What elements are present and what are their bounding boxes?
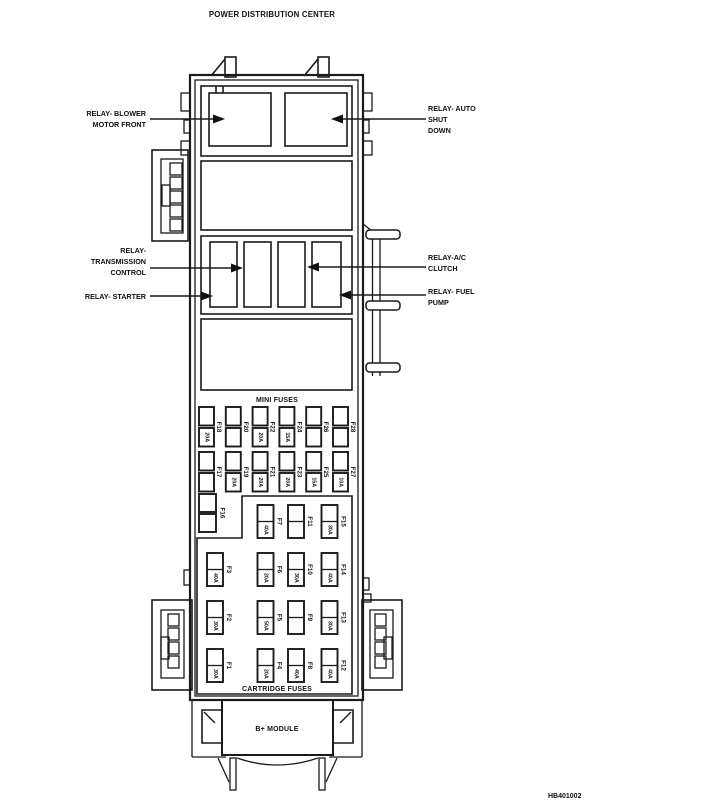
- mini-fuse-grid: 20AF18F2020AF2215AF24F26F28F1720AF1920AF…: [199, 407, 356, 492]
- auto-shutdown-label-line2: SHUT: [428, 115, 448, 124]
- cartridge-fuse-f11: F11: [288, 505, 313, 538]
- svg-text:20A: 20A: [263, 573, 269, 583]
- fuse-label-f19: F19: [242, 467, 249, 478]
- svg-text:10A: 10A: [338, 477, 344, 487]
- power-distribution-center-diagram: POWER DISTRIBUTION CENTER: [0, 0, 721, 810]
- cartridge-fuse-f15: 30AF15: [322, 505, 347, 538]
- fuel-pump-label-line1: RELAY- FUEL: [428, 287, 475, 296]
- fuse-label-f11: F11: [306, 516, 313, 527]
- fuse-label-f9: F9: [306, 614, 313, 622]
- cartridge-fuse-f9: F9: [288, 601, 313, 634]
- fuse-label-f18: F18: [215, 422, 222, 433]
- svg-text:40A: 40A: [263, 525, 269, 535]
- fuse-label-f21: F21: [269, 467, 276, 478]
- fuse-label-f6: F6: [276, 566, 283, 574]
- mini-fuse-f16: F16: [199, 494, 226, 532]
- fuse-label-f8: F8: [306, 662, 313, 670]
- svg-text:50A: 50A: [263, 621, 269, 631]
- cartridge-fuse-f6: 20AF6: [258, 553, 283, 586]
- transmission-label-line2: TRANSMISSION: [91, 257, 146, 266]
- cartridge-fuse-f1: 30AF1: [207, 649, 232, 682]
- fuel-pump-label-line2: PUMP: [428, 298, 449, 307]
- fuse-label-f16: F16: [219, 508, 226, 519]
- auto-shutdown-arrow: [331, 115, 426, 124]
- relay-cavity-row: [210, 242, 341, 307]
- svg-text:20A: 20A: [257, 432, 263, 442]
- cartridge-fuse-f12: 40AF12: [322, 649, 347, 682]
- ac-clutch-label-line2: CLUTCH: [428, 264, 458, 273]
- mini-fuse-f17: F17: [199, 452, 222, 492]
- svg-text:20A: 20A: [257, 477, 263, 487]
- blower-label-line2: MOTOR FRONT: [93, 120, 147, 129]
- transmission-label-line1: RELAY-: [120, 246, 146, 255]
- svg-text:40A: 40A: [212, 573, 218, 583]
- ac-clutch-label-line1: RELAY-A/C: [428, 253, 466, 262]
- auto-shutdown-label-line1: RELAY- AUTO: [428, 104, 476, 113]
- relay-cavity-ac-clutch: [278, 242, 305, 307]
- svg-text:30A: 30A: [293, 573, 299, 583]
- cartridge-fuse-f8: 40AF8: [288, 649, 313, 682]
- mini-fuse-f26: F26: [306, 407, 329, 447]
- relay-cavity-transmission: [244, 242, 271, 307]
- callout-arrows: [150, 115, 426, 301]
- fuse-label-f20: F20: [242, 422, 249, 433]
- svg-text:40A: 40A: [327, 573, 333, 583]
- auto-shutdown-label-line3: DOWN: [428, 126, 451, 135]
- cartridge-fuse-f3: 40AF3: [207, 553, 232, 586]
- fuse-label-f2: F2: [225, 614, 232, 622]
- mini-fuse-f27: 10AF27: [333, 452, 356, 492]
- fuse-label-f15: F15: [340, 516, 347, 527]
- fuse-label-f12: F12: [340, 660, 347, 671]
- fuse-label-f1: F1: [225, 662, 232, 670]
- mini-fuse-f18: 20AF18: [199, 407, 222, 447]
- fuse-label-f5: F5: [276, 614, 283, 622]
- fuse-label-f23: F23: [295, 467, 302, 478]
- b-module-assembly: B+ MODULE: [192, 700, 362, 790]
- svg-text:30A: 30A: [212, 669, 218, 679]
- section-boxes: [201, 86, 352, 390]
- bottom-left-connector-bracket: [152, 600, 192, 690]
- cartridge-fuse-f10: 30AF10: [288, 553, 313, 586]
- cartridge-fuse-f7: 40AF7: [258, 505, 283, 538]
- svg-text:20A: 20A: [230, 477, 236, 487]
- relay-callout-labels: RELAY- BLOWER MOTOR FRONT RELAY- AUTO SH…: [85, 104, 476, 307]
- fuse-label-f4: F4: [276, 662, 283, 670]
- left-connector-bracket: [152, 150, 188, 241]
- svg-text:30A: 30A: [327, 525, 333, 535]
- mini-fuse-f20: F20: [226, 407, 249, 447]
- b-module-label: B+ MODULE: [255, 726, 298, 733]
- cartridge-fuse-f14: 40AF14: [322, 553, 347, 586]
- svg-text:20A: 20A: [204, 432, 210, 442]
- fuse-label-f28: F28: [349, 422, 356, 433]
- fuse-label-f25: F25: [322, 467, 329, 478]
- svg-text:40A: 40A: [327, 669, 333, 679]
- starter-arrow: [150, 292, 213, 301]
- blower-label-line1: RELAY- BLOWER: [86, 109, 146, 118]
- cartridge-fuse-f5: 50AF5: [258, 601, 283, 634]
- mini-fuse-f28: F28: [333, 407, 356, 447]
- cartridge-fuse-f13: 30AF13: [322, 601, 347, 634]
- fuse-label-f14: F14: [340, 564, 347, 575]
- fuse-label-f7: F7: [276, 518, 283, 526]
- fuse-label-f10: F10: [306, 564, 313, 575]
- blower-arrow: [150, 115, 225, 124]
- mini-fuse-f23: 20AF23: [279, 452, 302, 492]
- fuse-label-f27: F27: [349, 467, 356, 478]
- fuse-label-f13: F13: [340, 612, 347, 623]
- relay-cavity-starter: [210, 242, 237, 307]
- bottom-right-connector-bracket: [362, 594, 402, 690]
- fuse-label-f3: F3: [225, 566, 232, 574]
- svg-text:15A: 15A: [311, 477, 317, 487]
- b-module-left-clip: [202, 710, 222, 743]
- fuse-label-f24: F24: [295, 422, 302, 433]
- cartridge-fuses-caption: CARTRIDGE FUSES: [242, 686, 312, 693]
- mini-fuse-f25: 15AF25: [306, 452, 329, 492]
- transmission-label-line3: CONTROL: [110, 268, 146, 277]
- mini-fuse-f24: 15AF24: [279, 407, 302, 447]
- mini-fuse-f19: 20AF19: [226, 452, 249, 492]
- b-module-right-clip: [333, 710, 353, 743]
- svg-text:20A: 20A: [284, 477, 290, 487]
- cartridge-fuse-grid: 40AF7F1130AF1540AF320AF630AF1040AF1430AF…: [207, 505, 347, 682]
- cartridge-fuse-f4: 20AF4: [258, 649, 283, 682]
- right-rail: [363, 224, 400, 376]
- part-number-code: HB401002: [548, 793, 582, 800]
- mini-fuses-caption: MINI FUSES: [256, 397, 298, 404]
- mini-fuse-f22: 20AF22: [253, 407, 276, 447]
- cartridge-fuse-f2: 30AF2: [207, 601, 232, 634]
- mini-fuse-f21: 20AF21: [253, 452, 276, 492]
- svg-text:20A: 20A: [263, 669, 269, 679]
- diagram-title: POWER DISTRIBUTION CENTER: [209, 10, 335, 19]
- fuse-label-f22: F22: [269, 422, 276, 433]
- transmission-arrow: [150, 264, 243, 273]
- b-module-legs: [218, 758, 337, 790]
- svg-text:30A: 30A: [212, 621, 218, 631]
- starter-label: RELAY- STARTER: [85, 292, 147, 301]
- svg-text:40A: 40A: [293, 669, 299, 679]
- ac-clutch-arrow: [307, 263, 426, 272]
- power-distribution-center-page: POWER DISTRIBUTION CENTER: [0, 0, 721, 810]
- svg-text:15A: 15A: [284, 432, 290, 442]
- relay-cavity-fuel-pump: [312, 242, 341, 307]
- svg-text:30A: 30A: [327, 621, 333, 631]
- fuse-label-f26: F26: [322, 422, 329, 433]
- fuse-label-f17: F17: [215, 467, 222, 478]
